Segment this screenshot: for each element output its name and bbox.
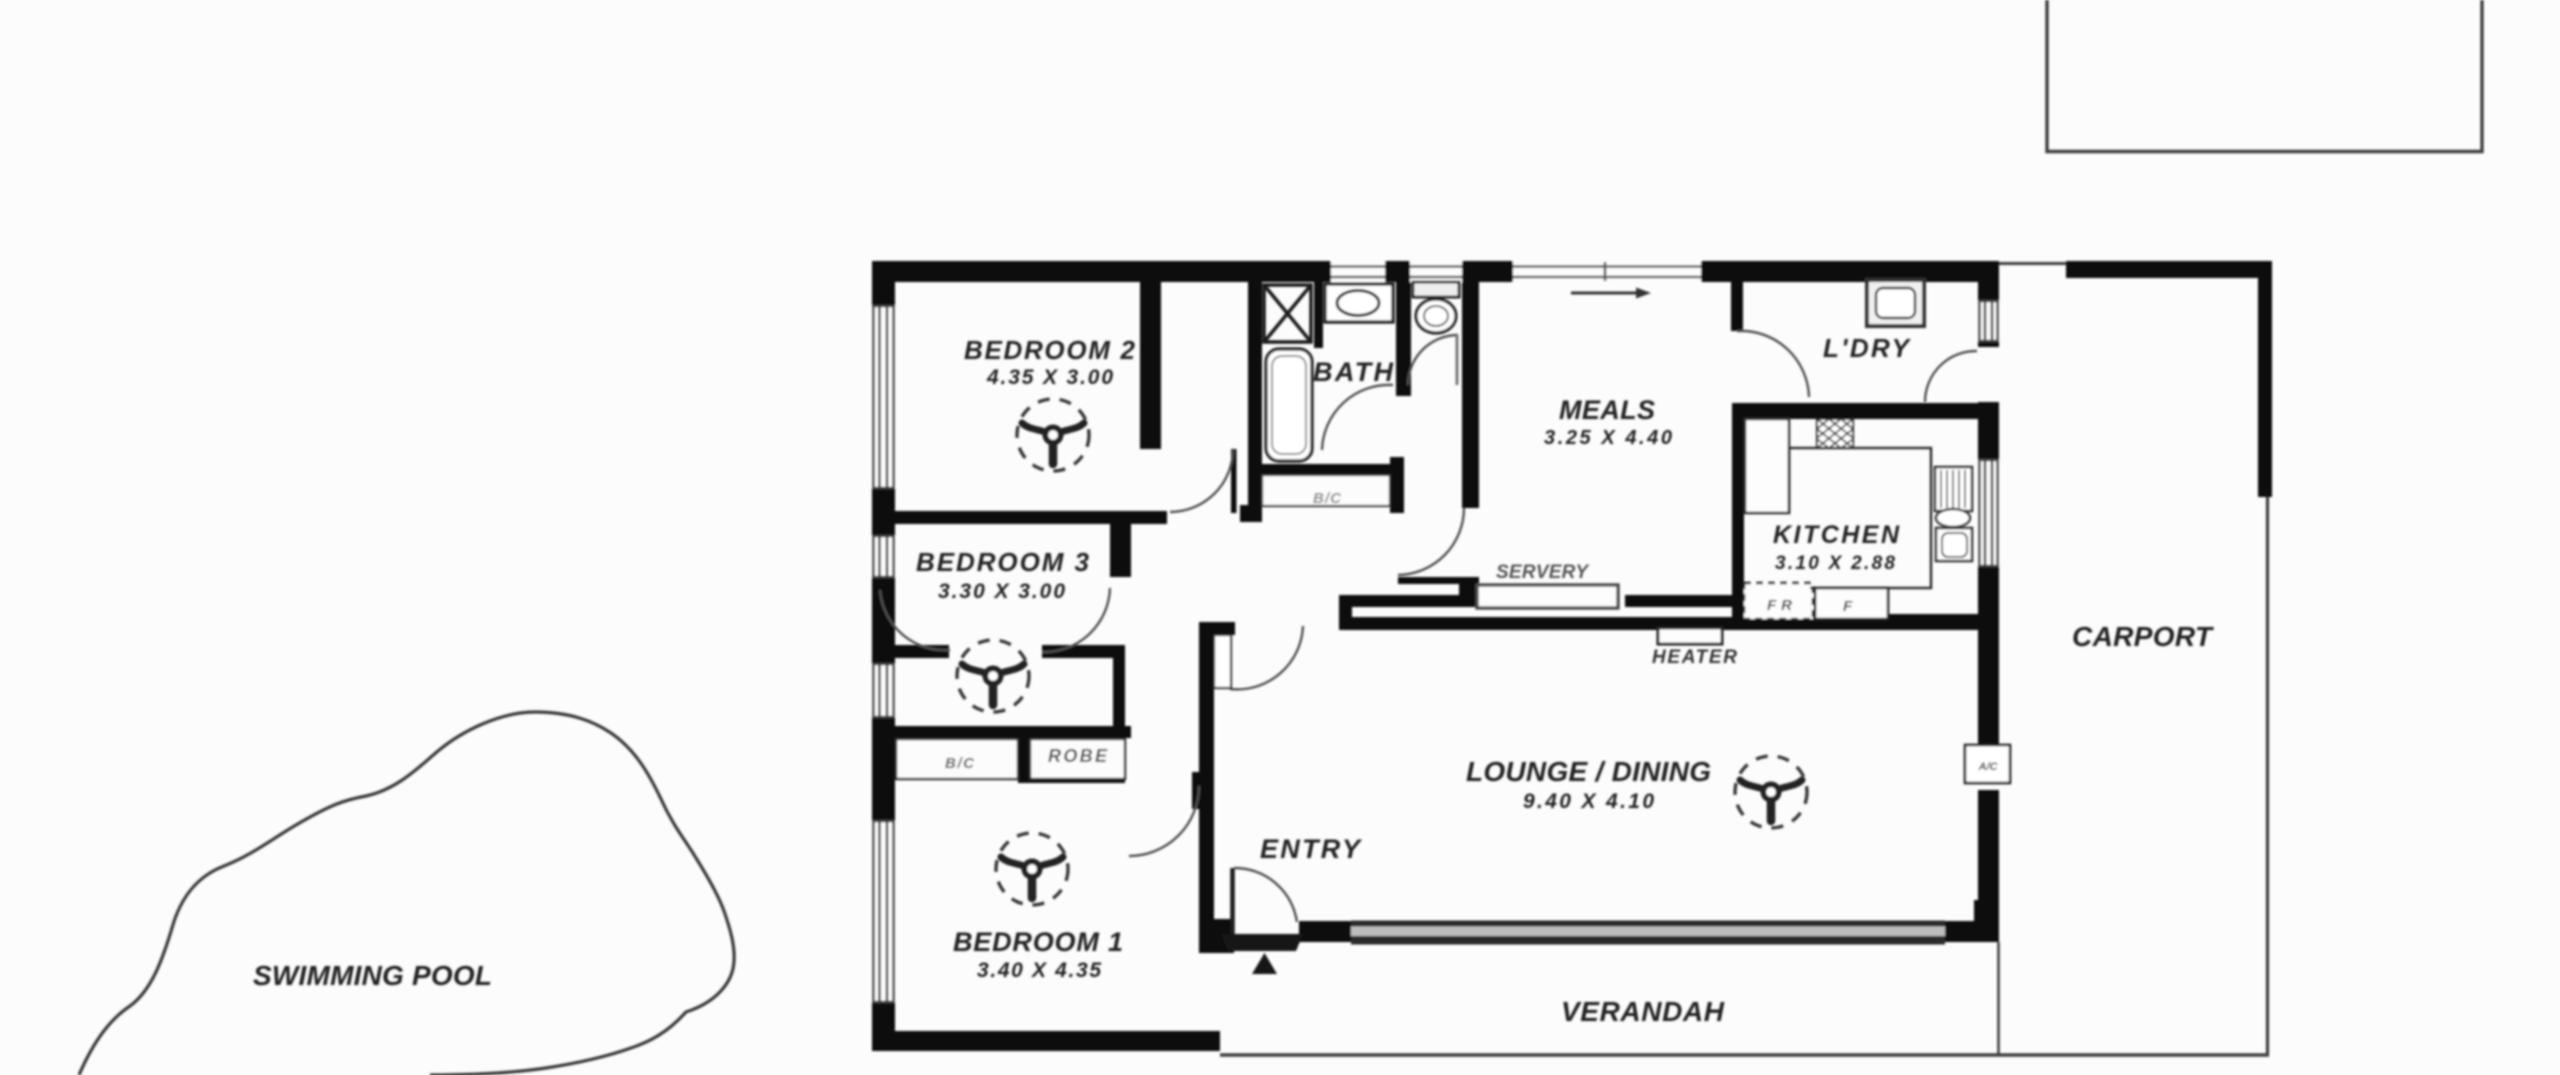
svg-text:CARPORT: CARPORT	[2072, 621, 2215, 652]
svg-text:B/C: B/C	[1313, 490, 1342, 507]
svg-text:BEDROOM 1: BEDROOM 1	[953, 927, 1123, 957]
svg-text:3.30 X 3.00: 3.30 X 3.00	[938, 580, 1065, 603]
svg-text:L'DRY: L'DRY	[1823, 333, 1912, 363]
svg-text:B/C: B/C	[945, 755, 975, 772]
svg-text:9.40 X 4.10: 9.40 X 4.10	[1523, 790, 1654, 813]
svg-text:LOUNGE / DINING: LOUNGE / DINING	[1466, 756, 1711, 787]
svg-text:ENTRY: ENTRY	[1260, 834, 1363, 864]
svg-text:3.40 X 4.35: 3.40 X 4.35	[977, 959, 1101, 982]
svg-text:F: F	[1843, 598, 1853, 615]
svg-text:A/C: A/C	[1978, 761, 1999, 773]
svg-text:VERANDAH: VERANDAH	[1561, 996, 1725, 1027]
svg-text:3.25 X 4.40: 3.25 X 4.40	[1544, 427, 1672, 449]
svg-text:MEALS: MEALS	[1559, 395, 1655, 425]
svg-text:SERVERY: SERVERY	[1496, 562, 1590, 583]
svg-text:SWIMMING POOL: SWIMMING POOL	[253, 960, 492, 991]
svg-text:4.35 X 3.00: 4.35 X 3.00	[986, 366, 1113, 389]
svg-text:3.10 X 2.88: 3.10 X 2.88	[1775, 553, 1895, 574]
svg-text:BEDROOM 2: BEDROOM 2	[964, 335, 1136, 365]
